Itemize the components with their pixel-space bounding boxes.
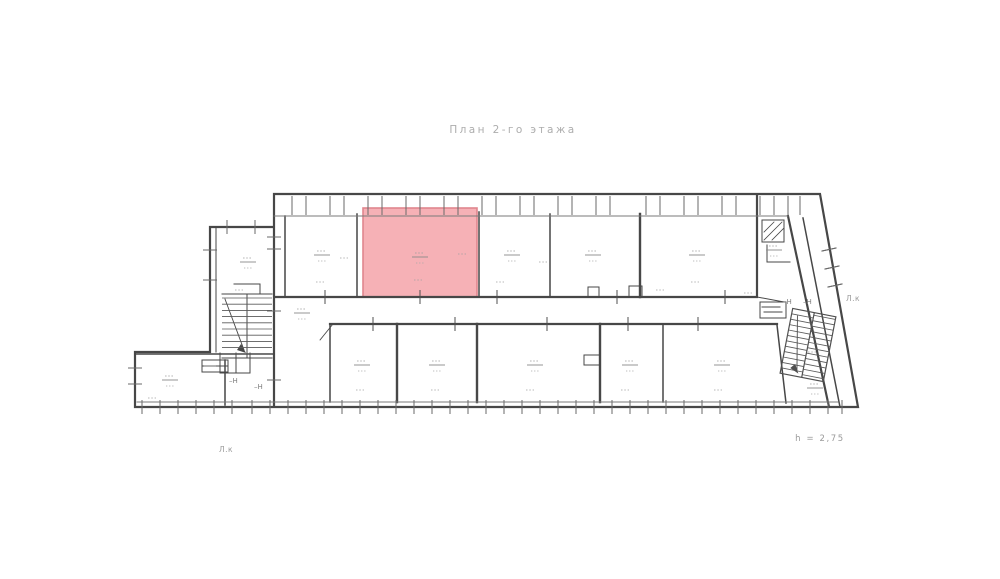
stair-step <box>807 348 829 352</box>
floor-plan-page: План 2-го этажа <box>0 0 1000 579</box>
stair-step <box>791 319 813 323</box>
stair-step <box>804 364 826 368</box>
stair-step <box>789 330 811 334</box>
highlighted-room[interactable] <box>363 208 477 297</box>
stair-step <box>805 358 827 362</box>
left-stair-arrow <box>225 299 244 350</box>
inner-wall-lines <box>137 216 838 402</box>
section-mark-1: –Н <box>229 377 238 385</box>
height-note: h = 2,75 <box>795 434 845 444</box>
stair-step <box>785 346 807 350</box>
stair-step <box>787 335 809 339</box>
stair-label-left: Л.к <box>219 445 233 454</box>
section-mark-2: –Н <box>254 383 263 391</box>
left-stair-arrowhead <box>237 344 246 353</box>
section-mark-4: –Н <box>803 298 812 306</box>
interior-walls <box>135 212 840 407</box>
window-tick <box>828 284 842 287</box>
generated-marks: –Н–Н–Н–Н <box>128 196 842 414</box>
floor-plan: План 2-го этажа <box>0 0 1000 579</box>
door-swing <box>320 324 333 340</box>
stair-step <box>783 357 805 361</box>
stair-step <box>812 326 834 330</box>
stair-step <box>790 325 812 329</box>
plan-title: План 2-го этажа <box>449 124 576 136</box>
stair-step <box>784 352 806 356</box>
right-stair-arrowhead <box>790 363 801 374</box>
stair-label-right: Л.к <box>846 294 860 303</box>
shaft-hatch <box>764 222 784 240</box>
stair-step <box>810 337 832 341</box>
section-mark-3: –Н <box>783 298 792 306</box>
